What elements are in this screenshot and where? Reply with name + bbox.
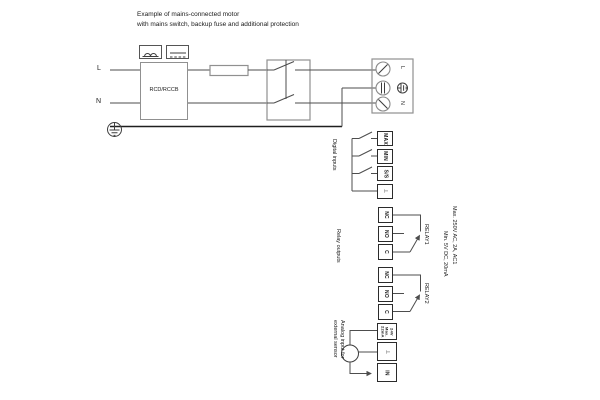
- relay2-nc-wire: [393, 275, 421, 292]
- relay1-label: RELAY1: [423, 224, 429, 245]
- relay2-label: RELAY2: [423, 283, 429, 304]
- switch-max: [352, 132, 377, 139]
- wire-ground-to-terminal: [342, 88, 376, 127]
- relay-rating-max: Max. 250V AC, 2A, AC1: [451, 206, 457, 264]
- switch-pole-l: [267, 62, 310, 71]
- relay1-terminal-nc: NC: [378, 207, 393, 223]
- motor-terminal-n-label: N: [399, 101, 405, 105]
- relay1-terminal-no: NO: [378, 226, 393, 242]
- analog-24v-wire: [350, 331, 377, 346]
- wiring-svg: [0, 0, 600, 400]
- relay2-contact-arm: [410, 295, 420, 312]
- terminal-analog-ground: ⊥: [377, 342, 397, 361]
- terminal-ss: S/S: [377, 166, 393, 181]
- relay-outputs-section-label: Relay outputs: [335, 229, 341, 263]
- ground-icon-bars: [110, 123, 120, 136]
- terminal-max: MAX: [377, 131, 393, 146]
- relay2-terminal-no: NO: [378, 286, 393, 302]
- mains-switch-box: [267, 60, 310, 120]
- terminal-24v-supply: 24V Max. 22mA: [377, 323, 397, 340]
- analog-in-wire: [350, 362, 371, 374]
- screw-terminal-pe: [376, 81, 390, 95]
- motor-terminal-l-label: L: [399, 66, 405, 69]
- terminal-in: IN: [377, 363, 397, 382]
- relay1-terminal-c: C: [378, 244, 393, 260]
- earth-icon-bars: [398, 84, 406, 92]
- relay1-nc-wire: [393, 215, 421, 232]
- switch-pole-n: [267, 95, 310, 104]
- terminal-digital-ground: ⊥: [377, 184, 393, 199]
- relay2-terminal-nc: NC: [378, 267, 393, 283]
- relay2-terminal-c: C: [378, 304, 393, 320]
- backup-fuse: [210, 66, 248, 76]
- wiring-diagram: Example of mains-connected motor with ma…: [0, 0, 600, 400]
- pulsating-dc-icon: [143, 54, 159, 57]
- terminal-min: MIN: [377, 149, 393, 164]
- switch-ss: [352, 167, 377, 174]
- switch-min: [352, 150, 377, 157]
- analog-input-section-label: Analog input for external sensor: [331, 320, 345, 359]
- digital-inputs-section-label: Digital inputs: [331, 139, 337, 171]
- digital-common-bus: [352, 139, 377, 192]
- relay1-contact-arm: [410, 236, 420, 253]
- relay-rating-min: Min. 5V DC, 20mA: [442, 231, 448, 277]
